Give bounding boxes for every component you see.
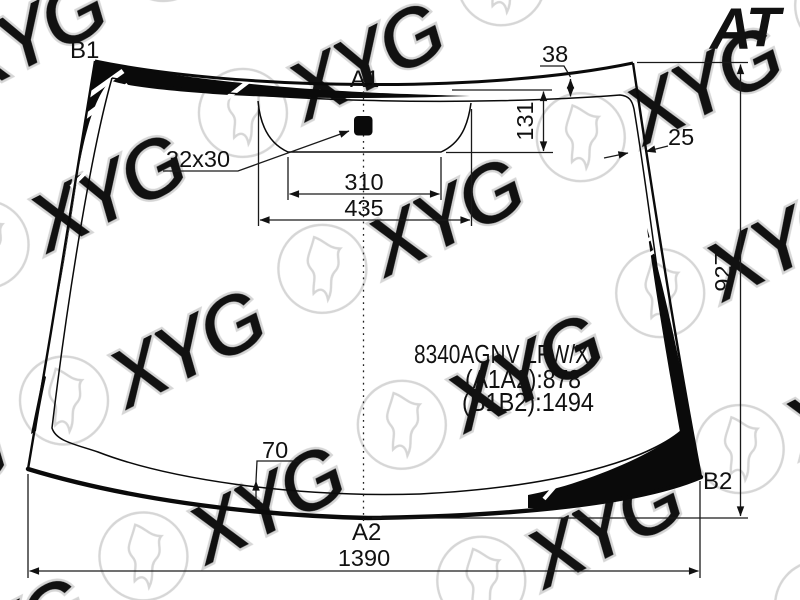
part-b1b2-measure: (B1B2):1494: [462, 387, 594, 417]
dim-927-value: 927: [710, 252, 736, 291]
at-logo: T A: [708, 0, 785, 62]
label-a2: A2: [352, 519, 381, 546]
dim-1390-value: 1390: [338, 545, 390, 571]
label-b2: B2: [703, 468, 732, 495]
at-logo-letter-a: A: [708, 0, 752, 62]
dim-310-value: 310: [344, 169, 383, 195]
dim-70-value: 70: [262, 437, 288, 463]
windshield-diagram: XYG: [0, 0, 800, 600]
dim-38-value: 38: [542, 41, 568, 67]
dim-sensor-value: 32x30: [166, 146, 230, 172]
dim-435-value: 435: [344, 195, 383, 221]
dim-131-value: 131: [512, 101, 538, 140]
rain-sensor-pad: [354, 116, 373, 136]
label-a1: A1: [350, 66, 379, 93]
windshield-drawing-page: XYG: [0, 0, 800, 600]
dim-25-value: 25: [668, 124, 694, 150]
label-b1: B1: [70, 37, 99, 64]
